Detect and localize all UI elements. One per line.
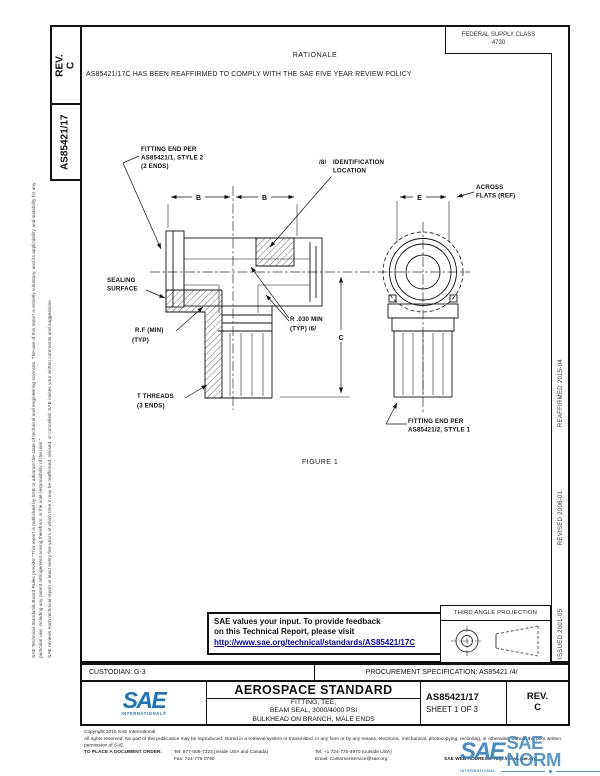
watermark-divider	[549, 769, 553, 773]
label-rf-l2: (TYP)	[132, 337, 149, 344]
label-threads-l2: (3 ENDS)	[137, 403, 165, 410]
disclaimer-paragraph-2: SAE reviews each technical report at lea…	[46, 178, 53, 658]
label-fitting-end-1-l2: AS85421/1, STYLE 2	[141, 155, 204, 162]
doc-type: AEROSPACE STANDARD	[207, 682, 420, 699]
label-fitting-end-2-l1: FITTING END PER	[408, 418, 464, 425]
label-fitting-end-1-l1: FITTING END PER	[141, 146, 197, 153]
label-sealing-l2: SURFACE	[107, 286, 138, 293]
section-view	[166, 231, 322, 398]
dimension-c: C	[280, 277, 350, 397]
doc-title-line1: FITTING, TEE,	[291, 699, 336, 707]
label-id-marker: /8/	[319, 159, 326, 166]
footer-rev-value: C	[534, 703, 541, 714]
order-label: TO PLACE A DOCUMENT ORDER:	[84, 749, 174, 755]
leader-fitting-end-2	[386, 403, 407, 424]
dim-e: E	[417, 195, 422, 202]
feedback-link[interactable]: http://www.sae.org/technical/standards/A…	[214, 638, 415, 647]
label-r030-l2: (TYP) /6/	[290, 326, 316, 333]
dimension-e: E	[397, 191, 449, 242]
fsc-label: FEDERAL SUPPLY CLASS	[462, 32, 536, 40]
document-page: REV. C AS85421/17 SAE Technical Standard…	[0, 0, 600, 776]
doc-number-vertical: AS85421/17	[61, 114, 72, 170]
hatched-nut-section	[256, 238, 294, 266]
label-fitting-end-2-l2: AS85421/2, STYLE 1	[408, 427, 471, 434]
rationale-title: RATIONALE	[80, 52, 550, 59]
label-threads-l1: T THREADS	[137, 393, 174, 400]
dim-c: C	[338, 335, 343, 342]
feedback-line2: on this Technical Report, please visit	[214, 627, 438, 637]
rev-box-text: REV. C	[55, 54, 76, 76]
feedback-box: SAE values your input. To provide feedba…	[207, 612, 445, 655]
footer-doc-number: AS85421/17	[426, 692, 506, 703]
fsc-value: 4730	[492, 40, 505, 48]
footer-rev-cell: REV. C	[507, 682, 568, 724]
sae-logo: SAE INTERNATIONAL®	[82, 682, 207, 724]
disclaimer-paragraph-1: SAE Technical Standards Board Rules prov…	[30, 178, 44, 658]
sae-norm-watermark: SAE SAE NORM INTERNATIONAL.	[460, 735, 600, 773]
doc-number-cell: AS85421/17 SHEET 1 OF 3	[421, 682, 507, 724]
figure-caption: FIGURE 1	[302, 459, 338, 466]
rev-value: C	[66, 54, 77, 76]
dimension-b: B B	[168, 191, 297, 236]
projection-symbol	[441, 621, 549, 661]
label-across-flats-l1: ACROSS	[476, 184, 503, 191]
order-tel2: Tel: +1 724-776-4970 (outside USA)	[315, 749, 444, 755]
watermark-text: SAE NORM	[506, 735, 600, 768]
rev-label: REV.	[55, 54, 66, 76]
leader-t-threads	[185, 385, 207, 398]
label-location: LOCATION	[333, 168, 366, 175]
dim-b-left: B	[196, 195, 201, 202]
legal-disclaimer: SAE Technical Standards Board Rules prov…	[30, 178, 56, 658]
leader-identification	[270, 177, 331, 247]
order-fax: Fax: 724-776-0790	[174, 756, 315, 762]
leader-sealing-surface	[146, 290, 165, 298]
sae-logo-text: SAE	[123, 690, 166, 711]
projection-label: THIRD ANGLE PROJECTION	[441, 606, 550, 621]
watermark-subtext: INTERNATIONAL.	[460, 769, 497, 773]
watermark-rule	[501, 771, 545, 772]
dim-b-right: B	[262, 195, 267, 202]
order-email: Email: CustomerService@sae.org	[315, 756, 444, 762]
label-identification: IDENTIFICATION	[333, 159, 385, 166]
rationale-text: AS85421/17C HAS BEEN REAFFIRMED TO COMPL…	[86, 71, 546, 78]
watermark-rule	[556, 771, 600, 772]
doc-title-line2: BEAM SEAL, 3000/4000 PSI	[270, 707, 357, 715]
projection-box: THIRD ANGLE PROJECTION	[440, 605, 551, 663]
custodian-cell: CUSTODIAN: G-3	[82, 665, 315, 680]
title-block: SAE INTERNATIONAL® AEROSPACE STANDARD FI…	[80, 680, 570, 726]
rev-box: REV. C	[50, 25, 82, 105]
watermark-sae-icon: SAE	[460, 741, 503, 763]
label-across-flats-l2: FLATS (REF)	[476, 193, 515, 200]
hatched-wall-section	[166, 290, 222, 398]
feedback-line1: SAE values your input. To provide feedba…	[214, 617, 438, 627]
sheet-number: SHEET 1 OF 3	[426, 705, 506, 714]
label-rf-l1: R.F (MIN)	[135, 327, 164, 334]
fsc-box: FEDERAL SUPPLY CLASS 4730	[445, 27, 551, 54]
issued-date: ISSUED 2001-05	[558, 609, 564, 659]
procurement-cell: PROCUREMENT SPECIFICATION: AS85421 /4/	[315, 665, 568, 680]
label-sealing-l1: SEALING	[107, 277, 136, 284]
technical-drawing: B B E C FITTING END P	[80, 115, 570, 605]
doc-number-box: AS85421/17	[50, 103, 82, 181]
order-tel1: Tel: 877-606-7323 (inside USA and Canada…	[174, 749, 315, 755]
doc-title-line3: BULKHEAD ON BRANCH, MALE ENDS	[252, 716, 374, 724]
leader-r030-upper	[251, 267, 289, 318]
label-r030-l1: R .030 MIN	[290, 316, 323, 323]
leader-r030-lower	[266, 295, 289, 321]
title-cell: AEROSPACE STANDARD FITTING, TEE, BEAM SE…	[207, 682, 421, 724]
leader-across-flats	[457, 192, 474, 197]
sae-logo-subtext: INTERNATIONAL®	[121, 711, 166, 716]
label-fitting-end-1-l3: (2 ENDS)	[141, 163, 169, 170]
